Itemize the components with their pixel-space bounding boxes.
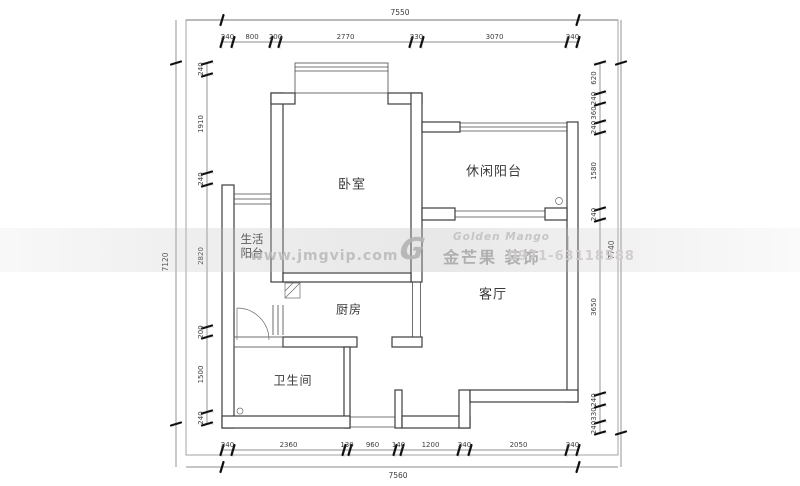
watermark-band: www.jmgvip.com G Golden Mango 金芒果 装饰 097… <box>0 228 800 272</box>
dim-label: 240 <box>566 33 579 41</box>
dim-label: 240 <box>197 62 205 75</box>
dim-label: 130 <box>340 441 353 449</box>
dim-label: 240 <box>197 172 205 185</box>
dim-mark <box>616 62 626 65</box>
dim-label: 240 <box>590 208 598 221</box>
room-label-living-room: 客厅 <box>479 284 507 303</box>
dim-label: 240 <box>197 411 205 424</box>
dim-label: 330 <box>590 407 598 420</box>
room-label-bedroom: 卧室 <box>338 174 366 193</box>
dim-label: 200 <box>197 325 205 338</box>
floor-drain-icon <box>237 408 243 414</box>
room-label-leisure-balcony: 休闲阳台 <box>466 161 522 180</box>
dim-mark <box>616 432 626 435</box>
dim-label: 240 <box>566 441 579 449</box>
dim-label: 7550 <box>390 8 409 17</box>
dim-label: 240 <box>221 33 234 41</box>
dim-mark <box>595 62 605 65</box>
dim-mark <box>577 15 580 25</box>
watermark-logo-en: Golden Mango <box>453 231 550 243</box>
dim-label: 7560 <box>388 471 407 480</box>
dim-mark <box>171 423 181 426</box>
dim-label: 2050 <box>510 441 528 449</box>
bay-window <box>295 63 388 93</box>
dim-label: 2770 <box>337 33 355 41</box>
dim-label: 3070 <box>486 33 504 41</box>
dim-mark <box>221 462 224 472</box>
dim-label: 200 <box>269 33 282 41</box>
dim-label: 240 <box>590 92 598 105</box>
dim-label: 240 <box>458 441 471 449</box>
mango-logo-icon: G <box>398 232 428 267</box>
dim-label: 1200 <box>422 441 440 449</box>
dim-label: 1910 <box>197 115 205 133</box>
dim-mark <box>221 15 224 25</box>
watermark-phone: 0971-63118588 <box>508 249 635 264</box>
dim-label: 240 <box>590 121 598 134</box>
balcony-drain-icon <box>556 198 563 205</box>
dim-label: 230 <box>410 33 423 41</box>
dim-label: 360 <box>590 106 598 119</box>
dim-label: 620 <box>590 71 598 84</box>
room-label-kitchen: 厨房 <box>336 301 362 318</box>
dim-label: 240 <box>590 393 598 406</box>
dim-label: 1580 <box>590 162 598 180</box>
dim-mark <box>577 462 580 472</box>
watermark-website: www.jmgvip.com <box>250 248 398 264</box>
floor-plan-page: 2408002002770230307024024023601309601401… <box>0 0 800 486</box>
room-label-bathroom: 卫生间 <box>273 372 312 389</box>
bathroom-door-arc <box>237 308 269 340</box>
dim-label: 800 <box>245 33 258 41</box>
dim-label: 1500 <box>197 366 205 384</box>
dim-label: 240 <box>221 441 234 449</box>
dim-label: 960 <box>366 441 379 449</box>
dim-label: 2360 <box>280 441 298 449</box>
dim-label: 3650 <box>590 298 598 316</box>
dim-label: 140 <box>392 441 405 449</box>
dim-mark <box>171 62 181 65</box>
dim-label: 240 <box>590 421 598 434</box>
